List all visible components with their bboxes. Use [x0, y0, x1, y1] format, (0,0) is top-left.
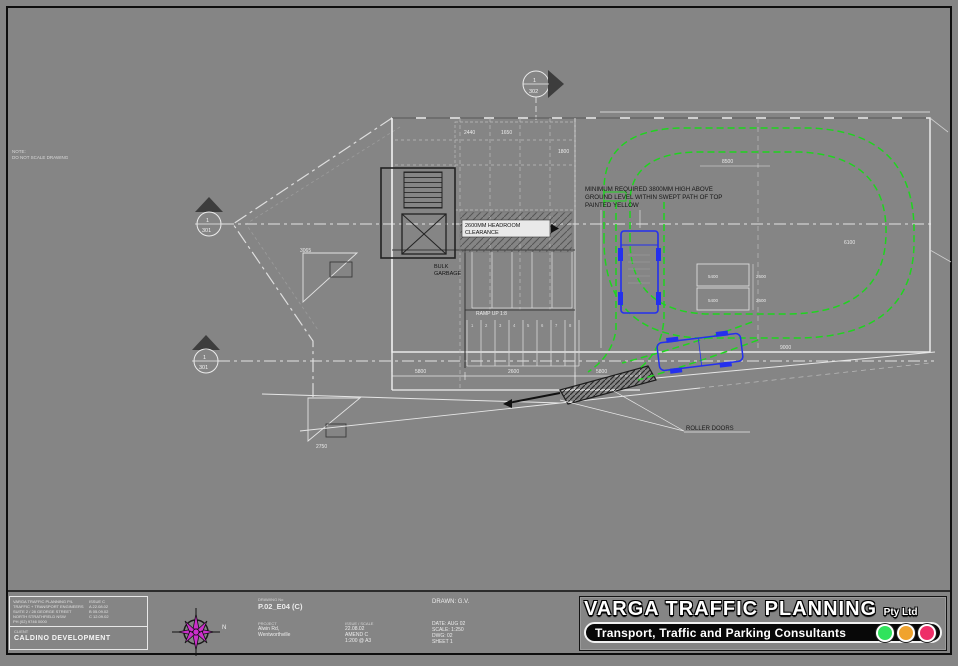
bay-number: 2 [485, 323, 488, 328]
site-plan-canvas: NOTE: DO NOT SCALE DRAWING [0, 0, 958, 661]
dim-label: 1800 [558, 149, 569, 155]
bay-number: 4 [513, 323, 516, 328]
project-field: PROJECT Alwin Rd, Wentworthville [258, 621, 290, 638]
section-marker-low: 1 301 [192, 335, 220, 373]
client-name: CALDINO DEVELOPMENT [14, 635, 111, 642]
note-line2: GROUND LEVEL WITHIN SWEPT PATH OF TOP [585, 194, 722, 201]
traffic-light-red-icon [920, 626, 934, 640]
bay-number: 6 [541, 323, 544, 328]
section-number: 1 [203, 355, 206, 361]
bay-dim: 2600 [756, 298, 767, 303]
drawn-by: DRAWN: G.V. [432, 599, 469, 605]
drawing-number-field: DRAWING No P.02_E04 (C) [258, 597, 302, 611]
client-label: CLIENT [14, 629, 28, 634]
landscape-details [303, 253, 360, 441]
note-line1: MINIMUM REQUIRED 3800MM HIGH ABOVE [585, 186, 713, 193]
section-sheet: 301 [199, 365, 208, 371]
varga-logo-block: VARGA TRAFFIC PLANNING Pty Ltd Transport… [579, 596, 947, 651]
dim-label: 5800 [596, 369, 607, 375]
bay-dim: 5400 [708, 274, 719, 279]
clearance-note: MINIMUM REQUIRED 3800MM HIGH ABOVE GROUN… [585, 186, 722, 348]
section-number: 1 [206, 218, 209, 224]
traffic-light-green-icon [878, 626, 892, 640]
drawn-field: DRAWN: G.V. [432, 599, 469, 605]
project-line: Wentworthville [258, 632, 290, 638]
dimension-labels: 3065 2750 8500 6100 2440 1650 1800 9000 [300, 130, 855, 450]
company-name: VARGA TRAFFIC PLANNING Pty Ltd [584, 598, 942, 621]
cad-sheet: NOTE: DO NOT SCALE DRAWING [0, 0, 958, 661]
company-name-text: VARGA TRAFFIC PLANNING [584, 598, 877, 620]
boundary-chevron [233, 118, 400, 398]
drawing-number-value: P.02_E04 (C) [258, 602, 302, 611]
flow-arrow-icon [503, 399, 512, 408]
company-suffix: Pty Ltd [884, 607, 918, 618]
corner-note: NOTE: DO NOT SCALE DRAWING [12, 149, 69, 160]
dim-label: 2440 [464, 130, 475, 136]
corner-note-line2: DO NOT SCALE DRAWING [12, 155, 69, 160]
parking-row-upper [472, 252, 572, 308]
tagline-text: Transport, Traffic and Parking Consultan… [586, 626, 878, 640]
consultant-contact: VARGA TRAFFIC PLANNING P/L TRAFFIC + TRA… [13, 599, 84, 624]
title-strip: VARGA TRAFFIC PLANNING P/L TRAFFIC + TRA… [0, 591, 958, 654]
bulk-room-line2: GARBAGE [434, 271, 462, 277]
dim-label: 2750 [316, 444, 327, 450]
contact-line: PH (02) 9746 0000 [13, 619, 84, 624]
consultant-info-box: VARGA TRAFFIC PLANNING P/L TRAFFIC + TRA… [9, 596, 148, 650]
meta-field: DATE: AUG 02 SCALE: 1:250 DWG: 02 SHEET … [432, 621, 465, 645]
scale-issue-field: ISSUE / SCALE 22.08.02 AMEND C 1:200 @ A… [345, 621, 373, 644]
grid-centerlines [218, 97, 934, 361]
dim-label: 2600 [508, 369, 519, 375]
section-sheet: 302 [529, 89, 538, 95]
section-marker-top: 1 302 [523, 70, 564, 98]
ramp-label: RAMP UP 1:8 [476, 311, 507, 317]
section-sheet: 301 [202, 228, 211, 234]
headroom-note-line1: 2600MM HEADROOM [465, 223, 521, 229]
bay-dim: 5400 [708, 298, 719, 303]
section-number: 1 [533, 78, 536, 84]
bay-number: 7 [555, 323, 558, 328]
issue-table: ISSUE C A 22.08.02 B 05.09.02 C 12.09.02 [89, 599, 109, 619]
tagline-capsule: Transport, Traffic and Parking Consultan… [584, 622, 942, 643]
bulk-garbage-room: BULK GARBAGE [434, 264, 462, 277]
bay-number: 8 [569, 323, 572, 328]
issue-line: C 12.09.02 [89, 614, 109, 619]
bay-number: 5 [527, 323, 530, 328]
bay-number: 3 [499, 323, 502, 328]
bulk-room-line1: BULK [434, 264, 449, 270]
traffic-lights [878, 626, 940, 640]
note-line3: PAINTED YELLOW [585, 202, 639, 209]
section-marker-mid: 1 301 [195, 197, 223, 236]
corner-note-line1: NOTE: [12, 149, 26, 154]
traffic-light-amber-icon [899, 626, 913, 640]
parking-row-lower: 1 2 3 4 5 6 7 8 [467, 320, 579, 366]
dim-label: 5800 [415, 369, 426, 375]
bay-dim: 2600 [756, 274, 767, 279]
bay-number: 1 [471, 323, 474, 328]
headroom-zone: 2600MM HEADROOM CLEARANCE [460, 212, 572, 252]
truck-swept-vehicle [618, 231, 661, 313]
scale-issue-line: 1:200 @ A3 [345, 638, 373, 644]
dim-label: 1650 [501, 130, 512, 136]
headroom-note-line2: CLEARANCE [465, 230, 499, 236]
visitor-bays [697, 264, 753, 310]
roller-doors-label: ROLLER DOORS [686, 426, 734, 432]
dim-label: 8500 [722, 159, 733, 165]
dim-label: 6100 [844, 240, 855, 246]
dim-label: 9000 [780, 345, 791, 351]
meta-line: SHEET 1 [432, 639, 465, 645]
visitor-bay-labels: 5400 5400 2600 2600 [708, 274, 767, 303]
sheet-border [7, 7, 951, 654]
